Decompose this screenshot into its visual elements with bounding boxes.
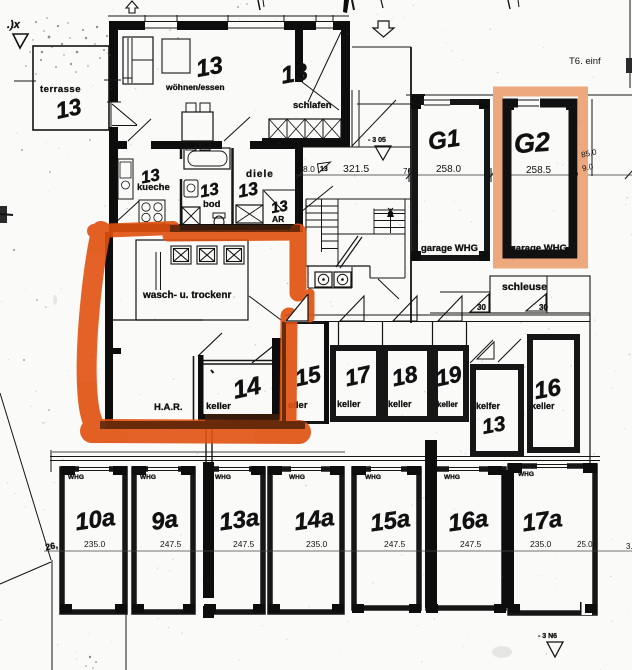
svg-text:keller: keller xyxy=(337,399,361,409)
svg-text:13: 13 xyxy=(480,412,507,439)
svg-text:16a: 16a xyxy=(447,505,490,537)
svg-text:235.0: 235.0 xyxy=(306,539,328,549)
svg-text:WHG: WHG xyxy=(215,474,231,481)
svg-text:247.5: 247.5 xyxy=(460,539,482,549)
svg-text:13: 13 xyxy=(320,166,328,173)
svg-text:G2: G2 xyxy=(513,127,551,159)
svg-text:13: 13 xyxy=(194,52,226,83)
svg-text:247.5: 247.5 xyxy=(384,539,406,549)
svg-text:9a: 9a xyxy=(149,505,179,535)
svg-text:8.0: 8.0 xyxy=(303,164,315,174)
svg-text:13: 13 xyxy=(198,179,220,201)
svg-text:wasch- u. trockenr: wasch- u. trockenr xyxy=(142,290,231,301)
svg-text:13: 13 xyxy=(139,165,161,187)
svg-text:13: 13 xyxy=(279,58,311,89)
svg-text:keller: keller xyxy=(437,400,458,409)
svg-text:15a: 15a xyxy=(369,505,412,537)
svg-text:235.0: 235.0 xyxy=(84,539,106,549)
svg-text:321.5: 321.5 xyxy=(343,163,369,175)
svg-text:247.5: 247.5 xyxy=(233,539,255,549)
svg-text:keller: keller xyxy=(206,401,231,412)
svg-text:25.0: 25.0 xyxy=(577,540,593,549)
svg-text:247.5: 247.5 xyxy=(160,539,182,549)
svg-text:bod: bod xyxy=(203,199,221,210)
svg-text:258.0: 258.0 xyxy=(436,164,461,175)
svg-text:16: 16 xyxy=(532,374,564,405)
svg-text:30: 30 xyxy=(477,303,486,312)
svg-text:schleuse: schleuse xyxy=(502,281,547,293)
svg-text:T6. einf: T6. einf xyxy=(569,56,601,67)
svg-text:- 3 05: - 3 05 xyxy=(368,137,386,144)
svg-text:garage WHG: garage WHG xyxy=(421,243,478,254)
svg-text:14: 14 xyxy=(230,371,263,404)
svg-text:3.: 3. xyxy=(626,542,632,551)
svg-text:235.0: 235.0 xyxy=(530,539,552,549)
svg-text:.)x: .)x xyxy=(7,19,21,31)
svg-text:WHG: WHG xyxy=(68,474,84,481)
svg-text:10a: 10a xyxy=(73,504,116,536)
svg-text:kelfer: kelfer xyxy=(476,401,501,411)
svg-text:schlafen: schlafen xyxy=(293,100,332,111)
svg-text:- 3 N6: - 3 N6 xyxy=(538,633,557,640)
svg-text:G1: G1 xyxy=(426,125,461,156)
svg-text:76: 76 xyxy=(403,167,412,176)
svg-text:WHG: WHG xyxy=(365,474,381,481)
svg-text:258.5: 258.5 xyxy=(526,165,551,176)
svg-text:30: 30 xyxy=(539,303,548,312)
svg-text:WHG: WHG xyxy=(289,474,305,481)
svg-text:keller: keller xyxy=(388,399,412,409)
svg-text:wöhnen/essen: wöhnen/essen xyxy=(165,82,225,92)
svg-text:WHG: WHG xyxy=(140,474,156,481)
svg-text:14a: 14a xyxy=(292,504,335,536)
svg-text:WHG: WHG xyxy=(518,471,534,478)
svg-text:13a: 13a xyxy=(218,504,261,536)
svg-text:H.A.R.: H.A.R. xyxy=(154,402,183,413)
svg-text:WHG: WHG xyxy=(444,474,460,481)
svg-text:13: 13 xyxy=(236,178,259,201)
svg-text:17a: 17a xyxy=(521,505,564,537)
